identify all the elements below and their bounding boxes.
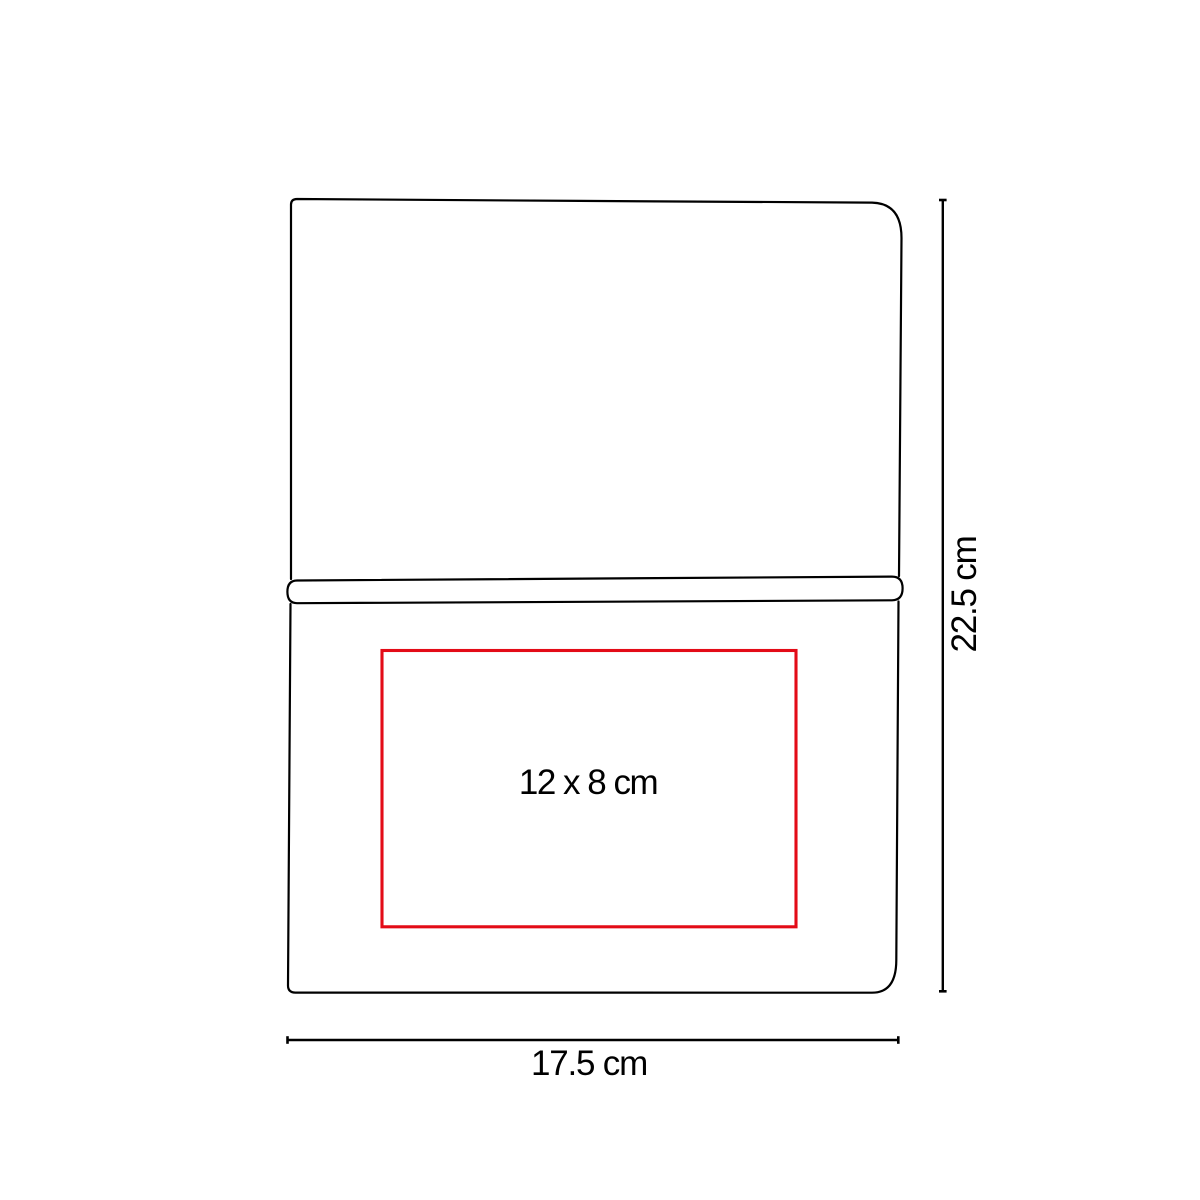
svg-text:17.5 cm: 17.5 cm <box>531 1044 647 1083</box>
svg-text:22.5 cm: 22.5 cm <box>945 536 984 652</box>
svg-text:12 x 8 cm: 12 x 8 cm <box>519 763 657 802</box>
